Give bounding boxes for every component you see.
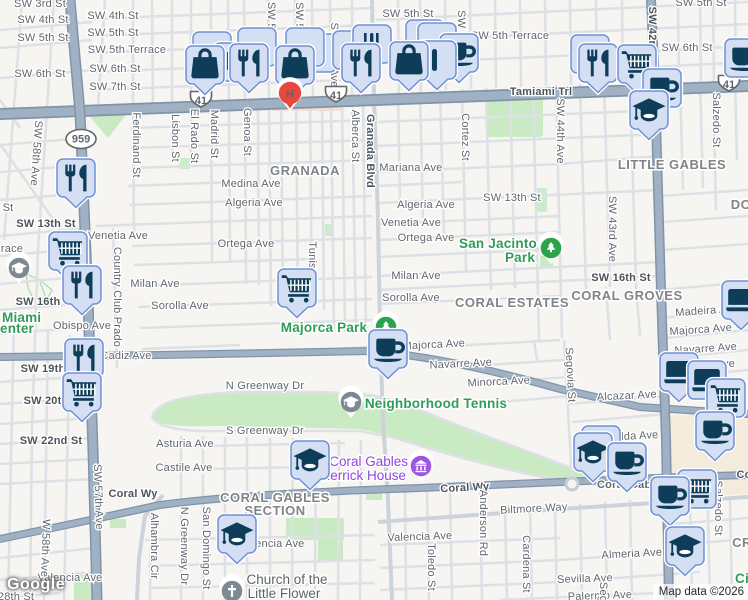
svg-text:Milan Ave: Milan Ave xyxy=(391,270,440,282)
svg-text:Ortega Ave: Ortega Ave xyxy=(218,238,275,250)
svg-text:SW 5: SW 5 xyxy=(293,2,305,30)
svg-text:Coral Gables: Coral Gables xyxy=(329,454,408,469)
svg-text:SW 22nd St: SW 22nd St xyxy=(20,435,83,447)
svg-text:SW 57th Ave: SW 57th Ave xyxy=(91,464,105,530)
svg-text:Medina Ave: Medina Ave xyxy=(221,178,280,190)
svg-text:Coral Wy: Coral Wy xyxy=(108,488,158,500)
svg-text:SW 6th St: SW 6th St xyxy=(661,42,712,54)
svg-text:El Rado St: El Rado St xyxy=(188,109,200,164)
svg-text:SW 16th: SW 16th xyxy=(16,296,61,308)
svg-text:Cadiz Ave: Cadiz Ave xyxy=(100,350,151,362)
svg-text:SW 5th Terrace: SW 5th Terrace xyxy=(471,30,549,42)
svg-text:CORAL GROVES: CORAL GROVES xyxy=(571,288,682,303)
svg-text:SW 5th Terrace: SW 5th Terrace xyxy=(88,44,166,56)
svg-text:SW 3rd St: SW 3rd St xyxy=(14,0,66,10)
svg-text:Obispo Ave: Obispo Ave xyxy=(53,320,111,332)
svg-text:Little Flower: Little Flower xyxy=(248,586,321,600)
svg-text:Alhambra Cir: Alhambra Cir xyxy=(148,513,160,580)
svg-text:Alberca St: Alberca St xyxy=(349,110,361,163)
svg-text:Church of the: Church of the xyxy=(246,572,327,587)
svg-text:Park: Park xyxy=(505,250,535,265)
svg-text:Valencia Ave: Valencia Ave xyxy=(387,530,452,544)
svg-text:H: H xyxy=(286,89,294,101)
svg-text:Algeria Ave: Algeria Ave xyxy=(397,199,455,211)
svg-text:DO: DO xyxy=(731,197,748,212)
svg-text:SW 43rd Ave: SW 43rd Ave xyxy=(606,196,618,262)
svg-text:Salzedo St: Salzedo St xyxy=(710,92,722,147)
svg-text:Mariana Ave: Mariana Ave xyxy=(379,162,442,174)
svg-text:Cardena St: Cardena St xyxy=(520,535,532,593)
svg-text:Milan Ave: Milan Ave xyxy=(130,278,179,290)
svg-text:Castile Ave: Castile Ave xyxy=(155,462,212,474)
svg-text:Neighborhood Tennis: Neighborhood Tennis xyxy=(365,396,507,411)
svg-text:SW 44th Ave: SW 44th Ave xyxy=(554,98,566,164)
svg-text:CR: CR xyxy=(732,535,748,550)
svg-text:Merrick House: Merrick House xyxy=(319,468,406,483)
svg-text:Asturia Ave: Asturia Ave xyxy=(156,438,214,450)
svg-text:Lisbon St: Lisbon St xyxy=(169,114,181,162)
svg-text:SW 42n: SW 42n xyxy=(646,7,658,48)
svg-text:SW 13th St: SW 13th St xyxy=(16,218,76,230)
svg-text:Toledo St: Toledo St xyxy=(425,543,437,591)
svg-text:SW 5th St: SW 5th St xyxy=(675,0,726,9)
svg-text:SW 6th St: SW 6th St xyxy=(14,68,65,80)
svg-text:GRANADA: GRANADA xyxy=(270,163,340,178)
svg-text:Granada Blvd: Granada Blvd xyxy=(364,114,376,188)
svg-text:SW 4th St: SW 4th St xyxy=(17,14,68,26)
svg-text:Ortega Ave: Ortega Ave xyxy=(398,232,455,244)
svg-text:SW 16th St: SW 16th St xyxy=(591,272,651,284)
svg-text:Venetia Ave: Venetia Ave xyxy=(381,217,441,229)
svg-text:Co: Co xyxy=(736,469,748,481)
svg-text:N Greenway Dr: N Greenway Dr xyxy=(178,507,190,586)
svg-text:SW 7th St: SW 7th St xyxy=(89,81,140,93)
svg-text:959: 959 xyxy=(72,134,90,146)
svg-text:St: St xyxy=(3,202,14,214)
svg-text:W 58th Ave: W 58th Ave xyxy=(38,519,52,577)
svg-text:San Domingo St: San Domingo St xyxy=(200,507,212,590)
svg-text:SW 5th St: SW 5th St xyxy=(87,27,138,39)
svg-text:Genoa St: Genoa St xyxy=(241,108,253,156)
svg-text:Country Club Prado: Country Club Prado xyxy=(111,247,123,347)
svg-text:LITTLE GABLES: LITTLE GABLES xyxy=(618,157,726,172)
svg-text:41: 41 xyxy=(330,90,342,102)
svg-text:Majorca Park: Majorca Park xyxy=(281,320,368,335)
svg-text:Venetia Ave: Venetia Ave xyxy=(88,230,148,242)
svg-text:SW 19th: SW 19th xyxy=(21,363,66,375)
svg-text:SW 4th St: SW 4th St xyxy=(87,10,138,22)
svg-text:Ferdinand St: Ferdinand St xyxy=(130,112,142,177)
svg-text:S Greenway Dr: S Greenway Dr xyxy=(226,425,304,437)
svg-text:CORAL ESTATES: CORAL ESTATES xyxy=(455,295,569,310)
svg-text:SW 13th St: SW 13th St xyxy=(483,192,541,204)
svg-text:41: 41 xyxy=(723,79,735,91)
svg-text:lda Ave: lda Ave xyxy=(621,429,659,443)
svg-text:Sorolla Ave: Sorolla Ave xyxy=(151,300,209,312)
svg-text:Tamiami Trl: Tamiami Trl xyxy=(510,86,573,98)
svg-text:Anderson Rd: Anderson Rd xyxy=(477,490,489,556)
svg-text:Algeria Ave: Algeria Ave xyxy=(225,197,283,209)
svg-text:enter: enter xyxy=(0,321,35,336)
svg-text:SW 6th St: SW 6th St xyxy=(89,63,140,75)
svg-text:N Greenway Dr: N Greenway Dr xyxy=(226,380,305,392)
svg-text:Seg: Seg xyxy=(597,582,609,600)
svg-text:San Jacinto: San Jacinto xyxy=(459,236,537,251)
svg-text:Cortez St: Cortez St xyxy=(459,113,471,161)
svg-text:Madrid St: Madrid St xyxy=(208,110,220,159)
svg-text:SW 5th St: SW 5th St xyxy=(17,32,68,44)
svg-text:Sorolla Ave: Sorolla Ave xyxy=(382,292,440,304)
